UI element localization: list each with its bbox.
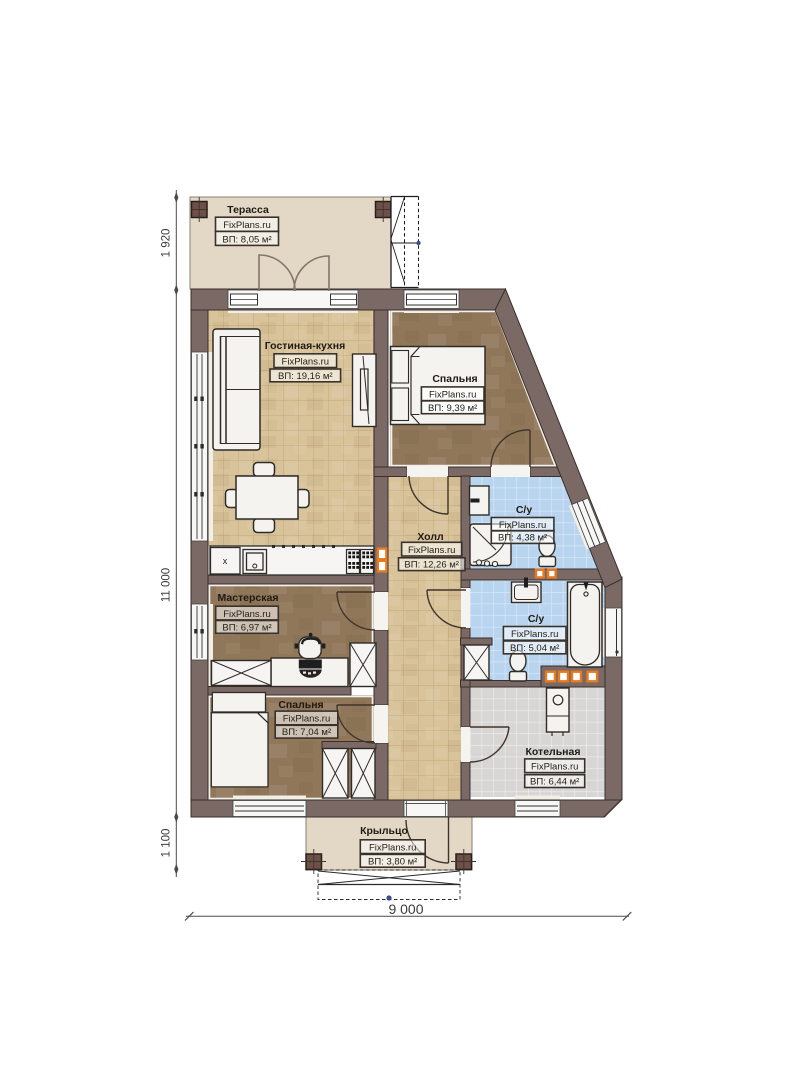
svg-text:x: x xyxy=(223,556,228,566)
svg-text:Спальня: Спальня xyxy=(278,699,323,711)
svg-text:С/у: С/у xyxy=(528,613,545,625)
svg-text:ВП: 6,44 м²: ВП: 6,44 м² xyxy=(530,777,579,788)
svg-text:ВП: 3,80 м²: ВП: 3,80 м² xyxy=(368,856,417,867)
svg-text:FixPlans.ru: FixPlans.ru xyxy=(511,629,559,640)
svg-text:11 000: 11 000 xyxy=(161,568,173,602)
svg-text:Котельная: Котельная xyxy=(526,746,581,758)
svg-text:9 000: 9 000 xyxy=(388,901,423,917)
svg-text:Спальня: Спальня xyxy=(432,373,477,385)
svg-text:ВП: 12,26 м²: ВП: 12,26 м² xyxy=(404,560,459,571)
svg-text:Крыльцо: Крыльцо xyxy=(360,825,408,837)
svg-text:ВП: 8,05 м²: ВП: 8,05 м² xyxy=(222,235,271,246)
svg-text:FixPlans.ru: FixPlans.ru xyxy=(408,545,456,556)
svg-text:FixPlans.ru: FixPlans.ru xyxy=(223,609,271,620)
svg-text:Холл: Холл xyxy=(417,531,443,543)
svg-text:Терасса: Терасса xyxy=(227,204,269,216)
svg-text:С/у: С/у xyxy=(516,504,533,516)
svg-text:FixPlans.ru: FixPlans.ru xyxy=(429,390,477,401)
svg-text:Мастерская: Мастерская xyxy=(217,592,278,604)
svg-text:1 100: 1 100 xyxy=(161,829,173,858)
svg-text:ВП: 9,39 м²: ВП: 9,39 м² xyxy=(428,403,477,414)
svg-text:FixPlans.ru: FixPlans.ru xyxy=(531,762,579,773)
svg-text:Гостиная-кухня: Гостиная-кухня xyxy=(265,340,345,352)
svg-text:FixPlans.ru: FixPlans.ru xyxy=(223,220,271,231)
svg-text:FixPlans.ru: FixPlans.ru xyxy=(283,714,331,725)
svg-text:ВП: 5,04 м²: ВП: 5,04 м² xyxy=(510,643,559,654)
svg-text:ВП: 7,04 м²: ВП: 7,04 м² xyxy=(282,727,331,738)
svg-text:1 920: 1 920 xyxy=(161,229,173,258)
svg-text:FixPlans.ru: FixPlans.ru xyxy=(282,356,330,367)
svg-text:ВП: 4,38 м²: ВП: 4,38 м² xyxy=(498,533,547,544)
svg-text:FixPlans.ru: FixPlans.ru xyxy=(499,520,547,531)
svg-text:ВП: 19,16 м²: ВП: 19,16 м² xyxy=(278,371,333,382)
svg-text:FixPlans.ru: FixPlans.ru xyxy=(369,842,417,853)
svg-text:ВП: 6,97 м²: ВП: 6,97 м² xyxy=(222,622,271,633)
